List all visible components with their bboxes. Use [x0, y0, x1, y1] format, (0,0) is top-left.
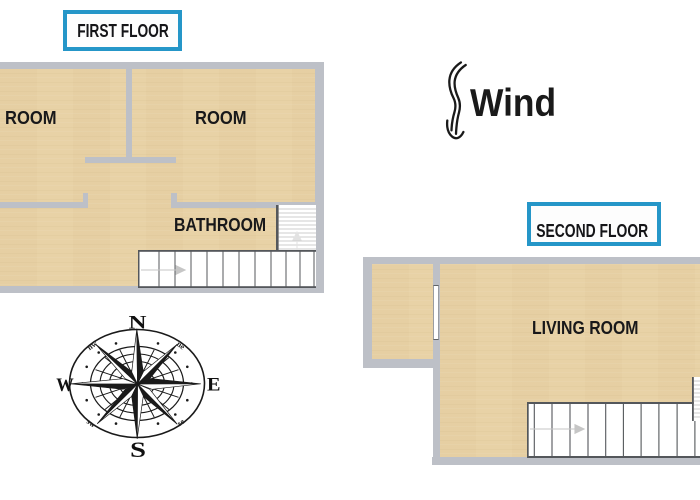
svg-text:ne: ne: [175, 339, 187, 351]
svg-text:S: S: [130, 437, 146, 462]
svg-text:W: W: [56, 375, 74, 396]
svg-text:N: N: [129, 313, 147, 334]
svg-text:E: E: [207, 375, 221, 396]
